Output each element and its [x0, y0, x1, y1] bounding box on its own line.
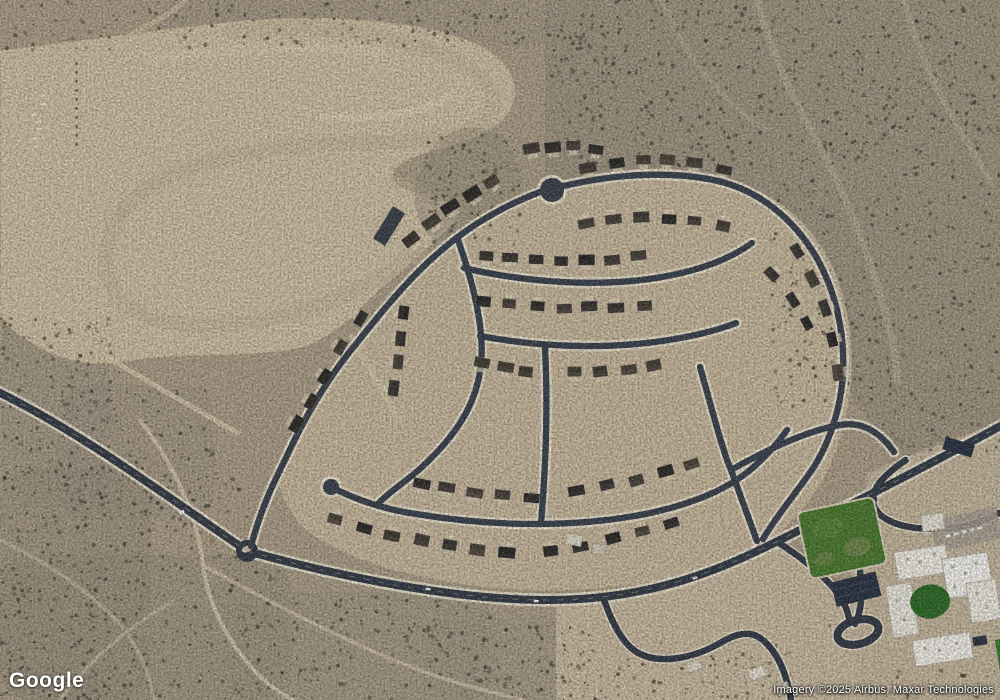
imagery-attribution: Imagery ©2025 Airbus, Maxar Technologies: [773, 684, 994, 696]
satellite-map-canvas[interactable]: Google Imagery ©2025 Airbus, Maxar Techn…: [0, 0, 1000, 700]
photo-grain: [0, 0, 1000, 700]
google-logo[interactable]: Google: [9, 669, 84, 693]
satellite-imagery: [0, 0, 1000, 700]
